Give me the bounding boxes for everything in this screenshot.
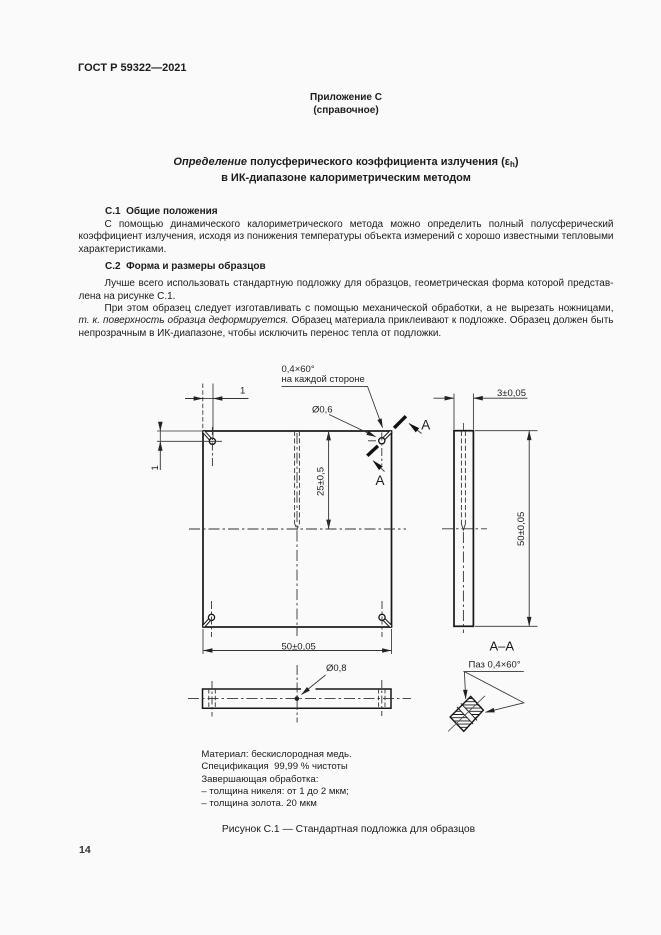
svg-text:Паз 0,4×60°: Паз 0,4×60° bbox=[469, 659, 521, 670]
svg-text:Ø0,6: Ø0,6 bbox=[312, 405, 333, 416]
svg-text:3±0,05: 3±0,05 bbox=[497, 388, 526, 399]
svg-text:Ø0,8: Ø0,8 bbox=[326, 663, 347, 674]
svg-text:1: 1 bbox=[240, 386, 245, 397]
svg-text:50±0,05: 50±0,05 bbox=[282, 642, 316, 653]
svg-text:на каждой стороне: на каждой стороне bbox=[282, 374, 365, 385]
svg-text:А–А: А–А bbox=[490, 639, 515, 654]
svg-text:А: А bbox=[421, 418, 430, 433]
svg-text:1: 1 bbox=[150, 465, 161, 470]
svg-text:50±0,05: 50±0,05 bbox=[516, 512, 527, 546]
svg-text:А: А bbox=[376, 473, 385, 488]
svg-text:25±0,5: 25±0,5 bbox=[315, 467, 326, 496]
